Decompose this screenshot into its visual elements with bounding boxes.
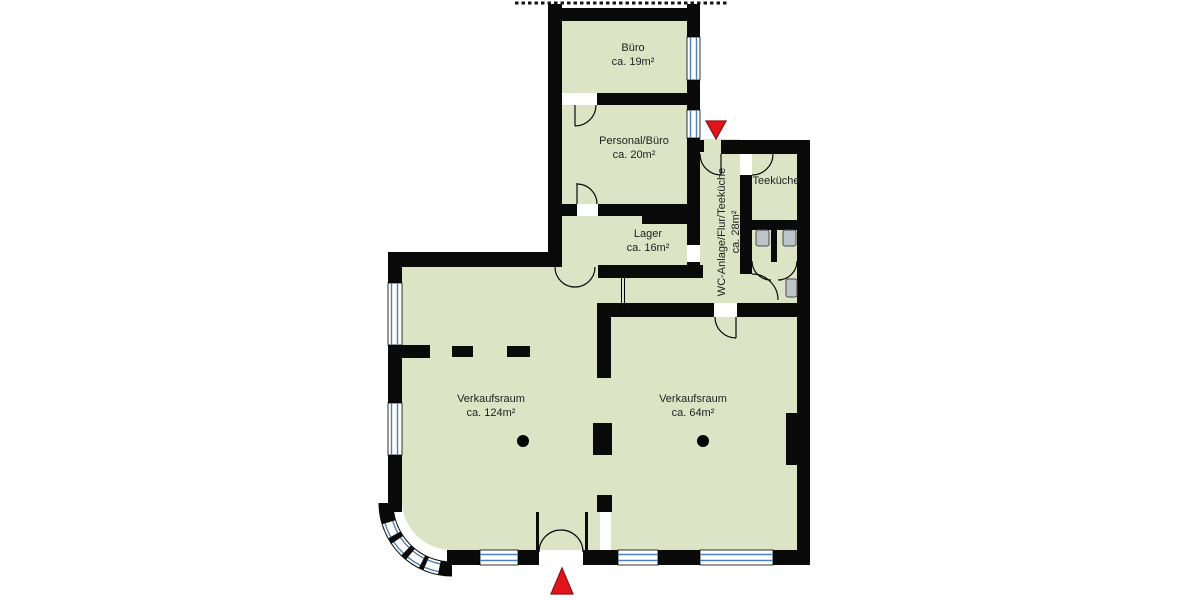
wall-segment bbox=[518, 550, 539, 565]
room-label-verkaufsraum-124: Verkaufsraum bbox=[457, 393, 525, 405]
wall-segment bbox=[597, 495, 612, 512]
room-area-buero: ca. 19m² bbox=[612, 56, 655, 68]
wall-segment bbox=[737, 303, 797, 317]
wc-stall-divider-wall bbox=[771, 230, 777, 262]
room-label-teekueche: Teeküche bbox=[752, 175, 799, 187]
wall-segment bbox=[642, 204, 688, 224]
room-floor-wall-gap-1 bbox=[597, 378, 611, 423]
wall-segment bbox=[658, 550, 700, 565]
window-bottom-2 bbox=[618, 550, 658, 565]
entrance-arrow-icon bbox=[706, 121, 726, 139]
wall-segment bbox=[388, 455, 402, 512]
window-buero bbox=[687, 37, 700, 80]
room-floor-wall-gap-2 bbox=[597, 455, 611, 495]
wall-segment bbox=[597, 317, 611, 378]
room-label-personal-buero: Personal/Büro bbox=[599, 135, 669, 147]
lager-wall-opening bbox=[687, 245, 700, 262]
toilet-icon bbox=[783, 230, 796, 246]
column-verkaufsraum-124 bbox=[517, 435, 529, 447]
wall-segment bbox=[700, 140, 704, 152]
wall-segment bbox=[687, 152, 700, 245]
entrance-jamb-left bbox=[536, 512, 539, 552]
wall-segment bbox=[687, 80, 700, 110]
wall-segment bbox=[597, 93, 687, 105]
window-personal-buero bbox=[687, 110, 700, 138]
room-area-verkaufsraum-124: ca. 124m² bbox=[467, 407, 516, 419]
wall-stub bbox=[388, 345, 430, 358]
wall-segment bbox=[388, 252, 553, 267]
wall-segment bbox=[447, 550, 480, 565]
washbasin-icon bbox=[786, 279, 797, 297]
wall-segment bbox=[773, 550, 810, 565]
wall-segment bbox=[388, 252, 402, 283]
entrance-jamb-right bbox=[585, 512, 588, 552]
room-label-lager: Lager bbox=[634, 228, 662, 240]
wall-segment bbox=[598, 265, 703, 278]
room-label-verkaufsraum-64: Verkaufsraum bbox=[659, 393, 727, 405]
wall-segment bbox=[687, 138, 700, 152]
toilet-icon bbox=[756, 230, 769, 246]
room-floor-verkaufsraum-64 bbox=[611, 317, 797, 550]
wall-segment bbox=[548, 8, 700, 21]
room-area-verkaufsraum-64: ca. 64m² bbox=[672, 407, 715, 419]
wall-segment bbox=[721, 140, 810, 154]
column-verkaufsraum-64 bbox=[697, 435, 709, 447]
wall-pillar bbox=[593, 423, 612, 455]
dashed-wall-segment bbox=[452, 346, 473, 357]
room-floor-teekueche bbox=[752, 154, 797, 220]
wall-segment bbox=[562, 204, 577, 216]
wall-pillar bbox=[786, 413, 798, 465]
room-area-lager: ca. 16m² bbox=[627, 242, 670, 254]
wall-segment bbox=[687, 4, 700, 37]
window-left-2 bbox=[388, 403, 402, 455]
wall-segment bbox=[597, 303, 714, 317]
wall-segment bbox=[583, 550, 618, 565]
window-bottom-1 bbox=[480, 550, 518, 565]
window-left-1 bbox=[388, 283, 402, 345]
room-area-wc-flur: ca. 28m² bbox=[730, 210, 742, 253]
room-label-buero: Büro bbox=[621, 42, 644, 54]
wall-segment bbox=[548, 4, 562, 267]
room-area-personal-buero: ca. 20m² bbox=[613, 149, 656, 161]
entrance-arrow-icon bbox=[551, 568, 573, 594]
wall-segment bbox=[797, 142, 810, 565]
dashed-wall-segment bbox=[507, 346, 530, 357]
room-label-wc-flur-name: WC-Anlage/Flur/Teeküche bbox=[716, 168, 728, 296]
window-bottom-3 bbox=[700, 550, 773, 565]
floor-plan: Büro ca. 19m² Personal/Büro ca. 20m² Lag… bbox=[0, 0, 1200, 600]
